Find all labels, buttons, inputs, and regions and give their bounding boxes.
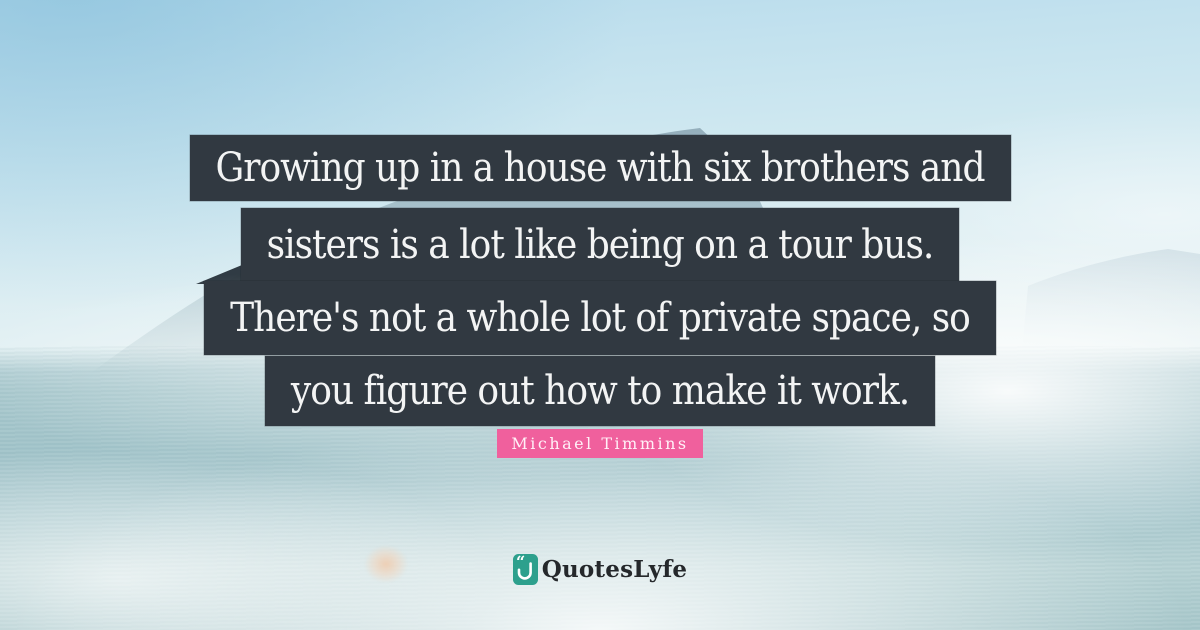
quote-line-text: sisters is a lot like being on a tour bu…: [267, 222, 934, 268]
quote-line-text: There's not a whole lot of private space…: [230, 295, 970, 341]
svg-text:“: “: [516, 554, 525, 572]
quote-card: Growing up in a house with six brothers …: [0, 0, 1200, 630]
quote-block: Growing up in a house with six brothers …: [0, 135, 1200, 426]
quote-line-strip: sisters is a lot like being on a tour bu…: [241, 208, 960, 281]
quoteslyfe-logo-icon: “: [513, 554, 538, 585]
quote-line-strip: There's not a whole lot of private space…: [204, 281, 996, 355]
quote-line-strip: Growing up in a house with six brothers …: [190, 135, 1011, 201]
quote-line-strip: you figure out how to make it work.: [265, 356, 935, 426]
quote-line-text: Growing up in a house with six brothers …: [216, 145, 985, 191]
brand-name: QuotesLyfe: [542, 556, 688, 583]
brand-logo: “ QuotesLyfe: [0, 554, 1200, 585]
author-name: Michael Timmins: [497, 429, 702, 458]
author-badge: Michael Timmins: [0, 429, 1200, 458]
quote-line-text: you figure out how to make it work.: [291, 368, 909, 414]
